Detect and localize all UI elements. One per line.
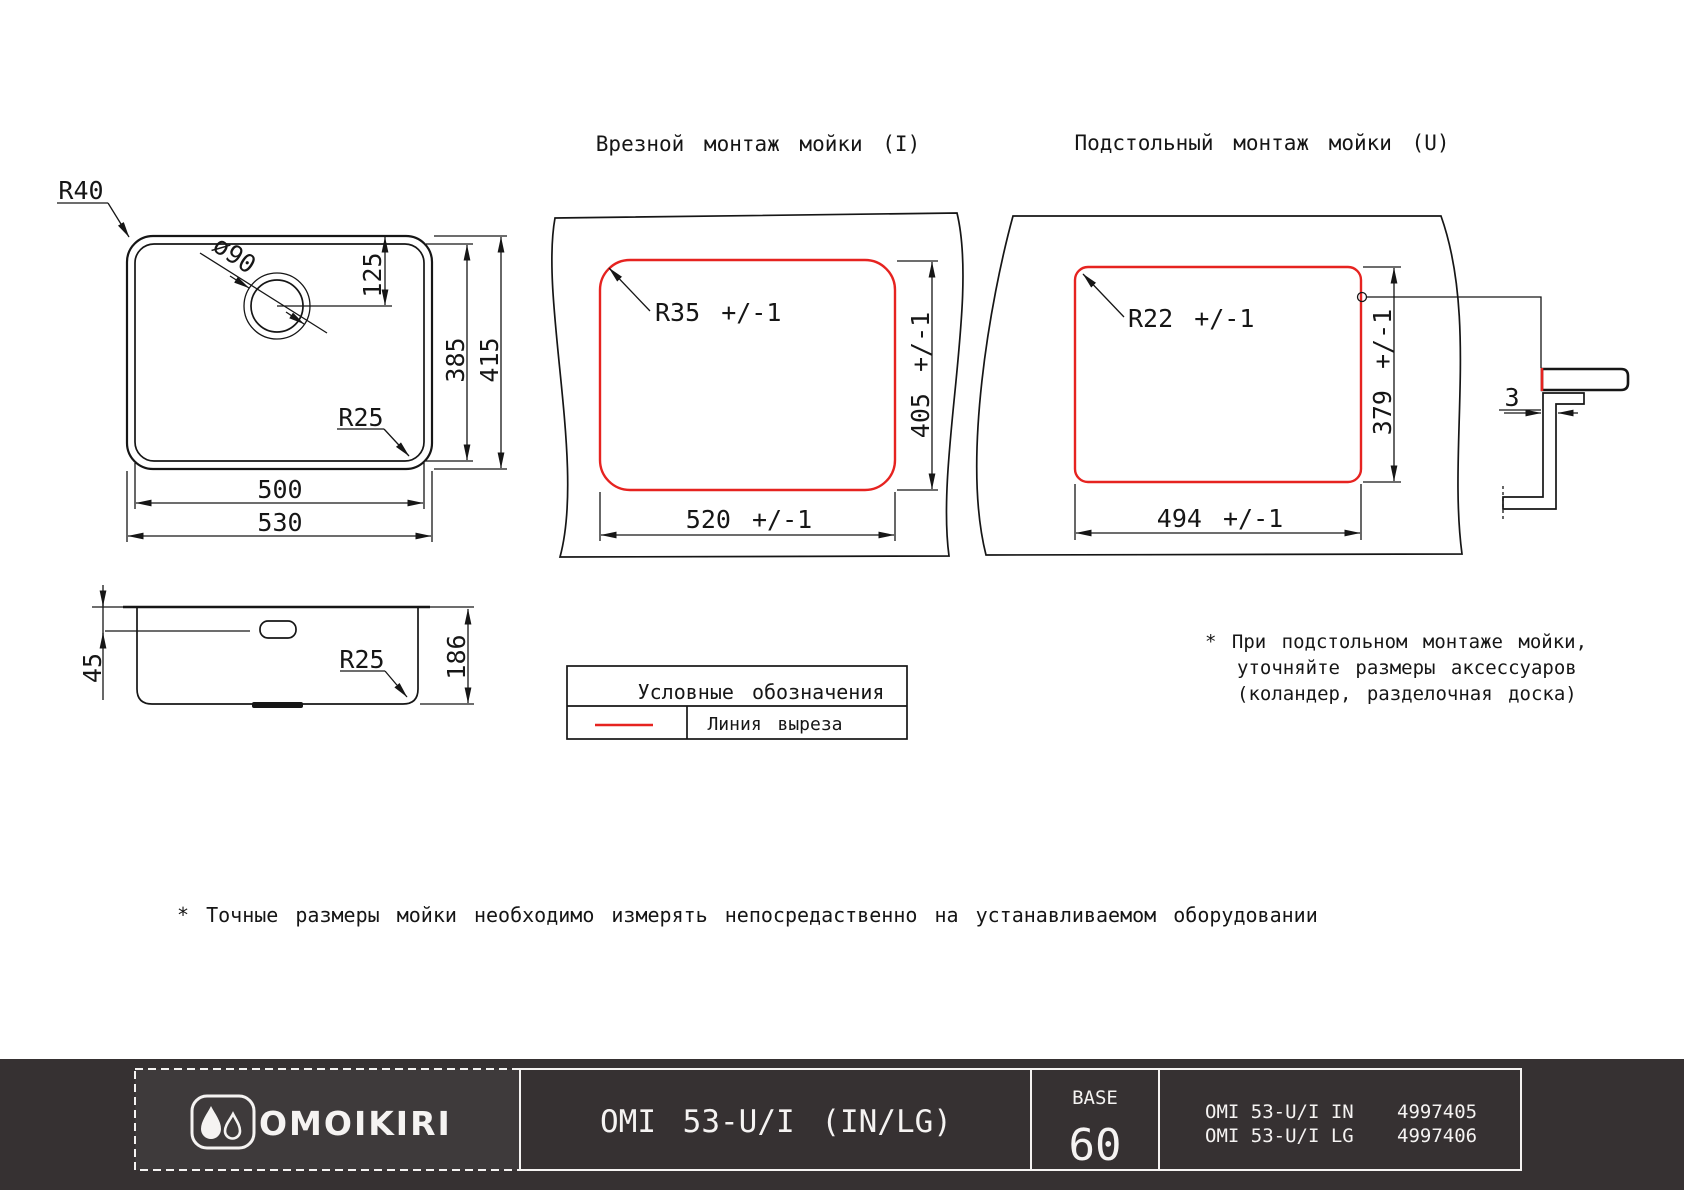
- legend-title: Условные обозначения: [638, 680, 885, 704]
- under-height-label: 379 +/-1: [1368, 309, 1397, 435]
- overflow-hole: [260, 621, 296, 638]
- bowl-radius-label: R25: [338, 403, 383, 432]
- under-height-dim: 379 +/-1: [1363, 267, 1401, 482]
- bowl-width-label: 500: [257, 475, 302, 504]
- inset-mount-title: Врезной монтаж мойки (I): [596, 132, 920, 156]
- base-value: 60: [1069, 1120, 1122, 1171]
- rim-section-detail: 3: [1499, 368, 1628, 522]
- drain-offset-dim: 125: [277, 237, 392, 306]
- cutout-line-under: [1075, 267, 1361, 482]
- under-radius-label: R22 +/-1: [1128, 304, 1254, 333]
- footer: OMOIKIRI OMI 53-U/I (IN/LG) BASE 60 OMI …: [0, 1059, 1684, 1190]
- rim-gap-dim: 3: [1499, 383, 1578, 413]
- inset-height-dim: 405 +/-1: [897, 261, 938, 490]
- inset-cutout-view: R35 +/-1 405 +/-1 520 +/-1: [552, 213, 963, 557]
- rim-gap-label: 3: [1504, 383, 1519, 412]
- legend-cut-line-label: Линия выреза: [707, 714, 842, 735]
- bowl-height-label: 385: [441, 337, 470, 382]
- worktop-section-slab: [1542, 369, 1628, 390]
- bottom-radius-label: R25: [339, 645, 384, 674]
- footer-model-title: OMI 53-U/I (IN/LG): [600, 1104, 952, 1140]
- overall-width-label: 530: [257, 508, 302, 537]
- code-row-1: 4997405: [1397, 1101, 1477, 1123]
- brand-name: OMOIKIRI: [259, 1104, 452, 1143]
- under-mount-note-line1: * При подстольном монтаже мойки,: [1205, 631, 1587, 653]
- bowl-radius-callout: R25: [337, 403, 409, 456]
- inset-width-dim: 520 +/-1: [600, 492, 895, 541]
- drain-diameter-label: ø90: [208, 230, 262, 279]
- cutout-line-inset: [600, 260, 895, 490]
- overflow-offset-label: 45: [78, 653, 107, 683]
- under-radius-callout: R22 +/-1: [1083, 274, 1254, 333]
- under-mount-note-line2: уточняйте размеры аксессуаров: [1237, 657, 1577, 679]
- overflow-offset-dim: 45: [78, 585, 107, 700]
- model-row-2: OMI 53-U/I LG: [1205, 1125, 1354, 1147]
- model-row-1: OMI 53-U/I IN: [1205, 1101, 1354, 1123]
- undermount-cutout-view: R22 +/-1 379 +/-1 494 +/-1: [977, 216, 1541, 555]
- base-label: BASE: [1072, 1087, 1118, 1109]
- under-mount-title: Подстольный монтаж мойки (U): [1074, 131, 1449, 155]
- inset-radius-callout: R35 +/-1: [609, 268, 781, 327]
- depth-dim: 186: [420, 607, 474, 704]
- overall-height-label: 415: [475, 337, 504, 382]
- drain-offset-label: 125: [358, 252, 387, 297]
- legend: Условные обозначения Линия выреза: [567, 666, 907, 739]
- under-mount-note-line3: (коландер, разделочная доска): [1237, 683, 1577, 705]
- measure-note: * Точные размеры мойки необходимо измеря…: [177, 903, 1318, 927]
- under-width-label: 494 +/-1: [1157, 504, 1283, 533]
- inset-height-label: 405 +/-1: [906, 312, 935, 438]
- depth-label: 186: [442, 634, 471, 679]
- under-width-dim: 494 +/-1: [1075, 484, 1361, 540]
- drawing-sheet: Врезной монтаж мойки (I) Подстольный мон…: [0, 0, 1684, 1190]
- code-row-2: 4997406: [1397, 1125, 1477, 1147]
- inset-width-label: 520 +/-1: [686, 505, 812, 534]
- drain-boss: [252, 702, 303, 708]
- inset-radius-label: R35 +/-1: [655, 298, 781, 327]
- sink-top-view: ø90 R40 R25 125 385: [57, 176, 507, 542]
- sink-side-view: 45 186 R25: [78, 585, 474, 708]
- bottom-radius-callout: R25: [339, 645, 407, 697]
- outer-radius-label: R40: [58, 176, 103, 205]
- outer-radius-callout: R40: [57, 176, 129, 237]
